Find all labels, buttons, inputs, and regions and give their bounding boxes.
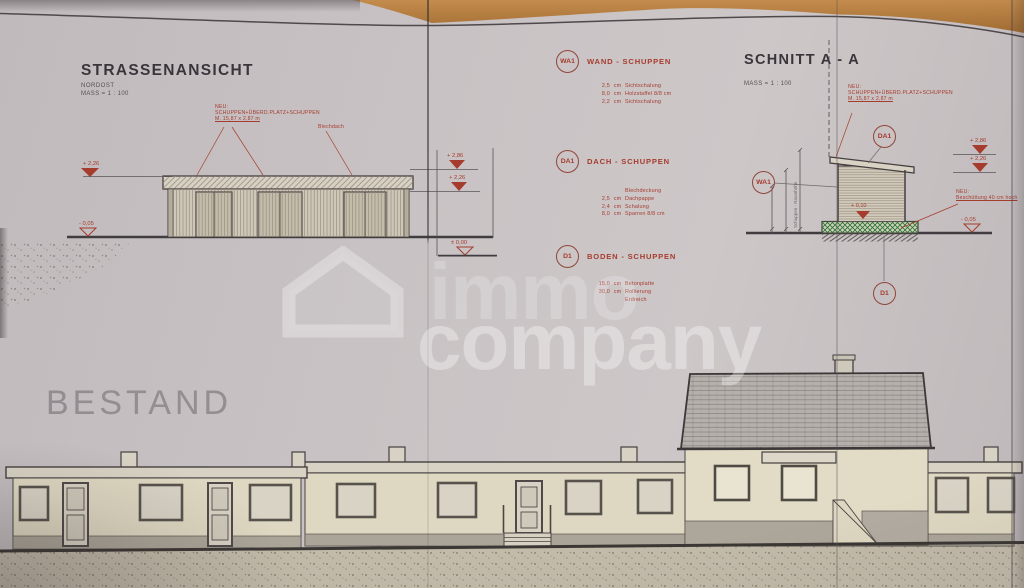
legend-row: 30,0cmRollierung bbox=[596, 289, 676, 295]
level-left-bottom: - 0,05 bbox=[79, 221, 94, 227]
legend-wa1-title: WAND - SCHUPPEN bbox=[587, 57, 671, 66]
level-sec-upper: + 2,86 bbox=[970, 138, 986, 144]
paper-sheet: + 2,26 - 0,05 + 2,86 + 2,26 ± 0,00 bbox=[0, 0, 1024, 588]
marker-d1: D1 bbox=[873, 282, 896, 305]
legend-row: Blechdeckung bbox=[596, 188, 670, 194]
legend-d1-code: D1 bbox=[556, 245, 579, 268]
level-sec-lower: + 2,26 bbox=[970, 156, 986, 162]
legend-da1: DA1 DACH - SCHUPPEN Blechdeckung 2,5cmDa… bbox=[556, 150, 670, 217]
dim-label-raumhoehe: Schuppen - Raumhöhe bbox=[793, 181, 798, 228]
legend-row: 2,5cmDachpappe bbox=[596, 196, 670, 202]
section-title: SCHNITT A - A bbox=[744, 52, 860, 68]
legend-da1-code: DA1 bbox=[556, 150, 579, 173]
terrain-stipple bbox=[0, 240, 133, 311]
legend-d1-title: BODEN - SCHUPPEN bbox=[587, 252, 676, 261]
below-grade-hatch bbox=[822, 233, 918, 242]
legend-row: 2,4cmSchalung bbox=[596, 204, 670, 210]
level-left-top: + 2,26 bbox=[83, 161, 99, 167]
level-sec-zero: - 0,05 bbox=[961, 217, 976, 223]
bestand-label: BESTAND bbox=[46, 384, 232, 423]
section-scale: MASS = 1 : 100 bbox=[744, 81, 860, 87]
legend-wa1-code: WA1 bbox=[556, 50, 579, 73]
neu-floor-note: NEU: Beschüttung 40 cm hoch bbox=[956, 189, 1018, 201]
legend-row: 15,0cmBetonplatte bbox=[596, 281, 676, 287]
neu-note-section: NEU: SCHUPPEN+ÜBERD.PLATZ+SCHUPPEN M. 15… bbox=[848, 84, 953, 103]
legend-row: 8,0cmHolzstaffel 8/8 cm bbox=[596, 91, 671, 97]
left-house-block bbox=[6, 452, 307, 549]
table-wood-edge bbox=[352, 0, 1024, 33]
level-sec-floor: + 0,10 bbox=[851, 203, 866, 209]
legend-row: 8,0cmSparren 8/8 cm bbox=[596, 211, 670, 217]
legend-row: Erdreich bbox=[596, 297, 676, 303]
level-right-lower: + 2,26 bbox=[449, 175, 465, 181]
street-view-titleblock: STRASSENANSICHT NORDOST MASS = 1 : 100 bbox=[81, 62, 254, 97]
plan-photo: + 2,26 - 0,05 + 2,86 + 2,26 ± 0,00 bbox=[0, 0, 1024, 588]
street-view-title: STRASSENANSICHT bbox=[81, 62, 254, 80]
legend-d1: D1 BODEN - SCHUPPEN 15,0cmBetonplatte 30… bbox=[556, 245, 676, 303]
marker-da1: DA1 bbox=[873, 125, 896, 148]
legend-row: 2,2cmSichtschalung bbox=[596, 99, 671, 105]
blechdach-note: Blechdach bbox=[318, 124, 344, 130]
level-right-upper: + 2,86 bbox=[447, 153, 463, 159]
neu-note-line3: M. 15,87 x 2,87 m bbox=[215, 116, 320, 122]
shed-doors bbox=[196, 192, 386, 237]
street-elevation: + 2,26 - 0,05 + 2,86 + 2,26 ± 0,00 bbox=[0, 127, 497, 311]
neu-note-street: NEU: SCHUPPEN+ÜBERD.PLATZ+SCHUPPEN M. 15… bbox=[215, 104, 320, 123]
legend-da1-title: DACH - SCHUPPEN bbox=[587, 157, 670, 166]
street-view-subtitle: NORDOST bbox=[81, 83, 254, 89]
street-view-scale: MASS = 1 : 100 bbox=[81, 91, 254, 97]
hipped-roof-house bbox=[677, 355, 935, 545]
legend-row: 2,5cmSichtschalung bbox=[596, 83, 671, 89]
level-right-zero: ± 0,00 bbox=[451, 240, 467, 246]
legend-wa1: WA1 WAND - SCHUPPEN 2,5cmSichtschalung 8… bbox=[556, 50, 671, 105]
marker-wa1: WA1 bbox=[752, 171, 775, 194]
section-titleblock: SCHNITT A - A MASS = 1 : 100 bbox=[744, 52, 860, 87]
